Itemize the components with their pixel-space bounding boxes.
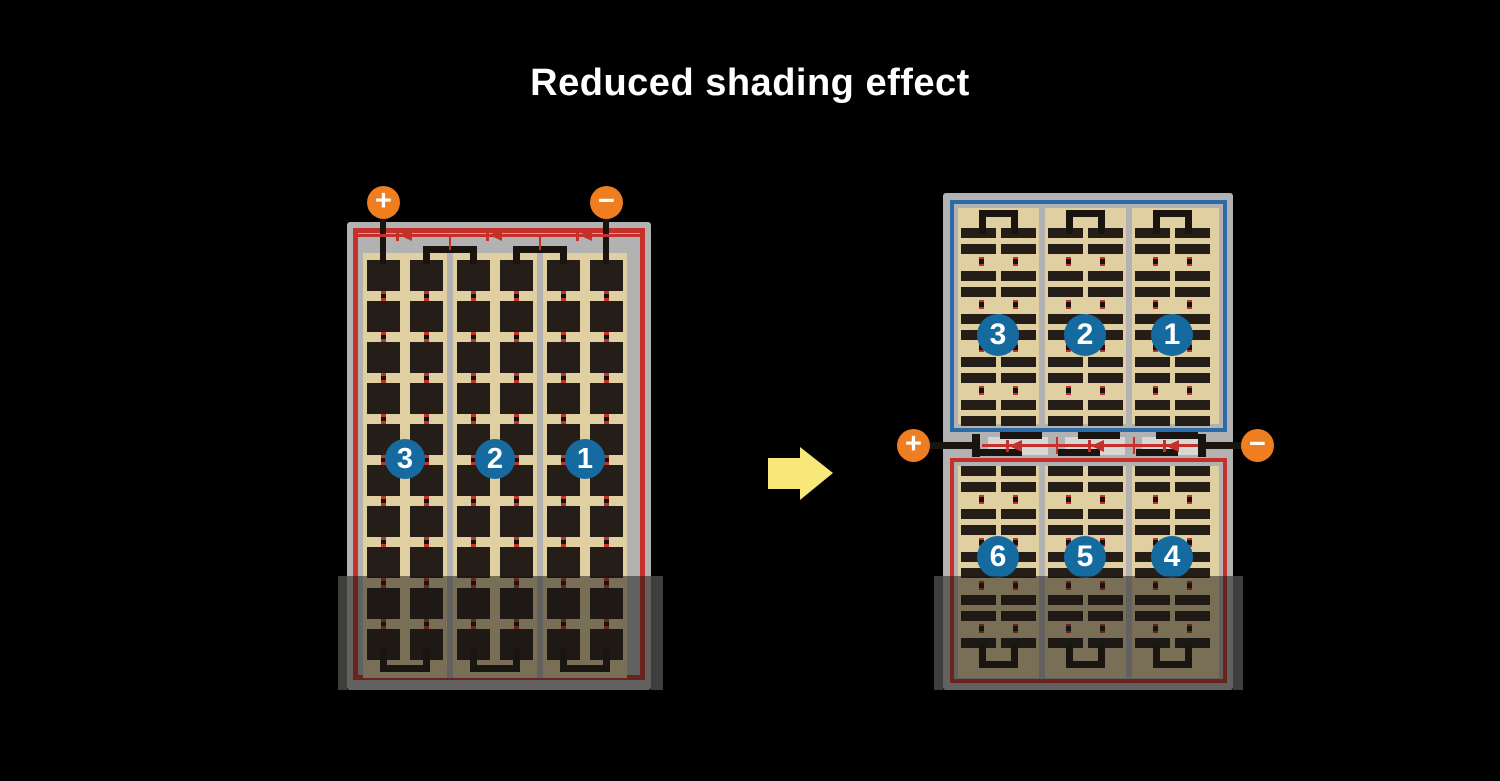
terminal-negative: − — [590, 186, 623, 219]
string-divider — [1039, 208, 1045, 424]
string-badge: 1 — [565, 439, 605, 479]
string-top-connector — [1066, 210, 1105, 234]
string-badge: 2 — [475, 439, 515, 479]
string-badge: 1 — [1151, 314, 1193, 356]
bypass-diode-icon — [396, 229, 413, 241]
terminal-negative: − — [1241, 429, 1274, 462]
string-badge: 6 — [977, 536, 1019, 578]
bus-tap — [539, 236, 541, 250]
junction-wire — [1000, 432, 1042, 439]
diagram-stage: Reduced shading effect + − 3 2 1 — [0, 0, 1500, 781]
string-badge: 3 — [385, 439, 425, 479]
string-top-connector — [979, 210, 1018, 234]
bus-tap — [449, 236, 451, 250]
plus-icon: + — [375, 187, 392, 216]
shading-overlay — [347, 576, 651, 690]
string-badge: 5 — [1064, 536, 1106, 578]
string-badge: 3 — [977, 314, 1019, 356]
minus-icon: − — [1249, 430, 1266, 459]
bus-tap — [1056, 437, 1058, 454]
plus-icon: + — [905, 430, 922, 459]
minus-icon: − — [598, 187, 615, 216]
bypass-diode-icon — [576, 229, 593, 241]
junction-wire — [1156, 432, 1198, 439]
string-divider — [1126, 208, 1132, 424]
terminal-lead-wire — [930, 442, 974, 449]
string-top-connector — [1153, 210, 1192, 234]
string-badge: 4 — [1151, 536, 1193, 578]
page-title: Reduced shading effect — [0, 62, 1500, 105]
shading-overlay — [943, 576, 1233, 690]
terminal-positive: + — [367, 186, 400, 219]
terminal-lead-wire — [380, 216, 386, 264]
bypass-diode-icon — [1088, 440, 1105, 452]
shading-overlay-edge — [651, 576, 663, 690]
terminal-positive: + — [897, 429, 930, 462]
bypass-diode-icon — [1006, 440, 1023, 452]
junction-wire — [1078, 432, 1120, 439]
shading-overlay-edge — [338, 576, 347, 690]
bypass-diode-icon — [1163, 440, 1180, 452]
terminal-lead-wire — [603, 216, 609, 264]
bypass-diode-icon — [486, 229, 503, 241]
string-badge: 2 — [1064, 314, 1106, 356]
shading-overlay-edge — [1233, 576, 1243, 690]
shading-overlay-edge — [934, 576, 943, 690]
bus-tap — [1133, 437, 1135, 454]
right-arrow-icon — [768, 447, 833, 500]
